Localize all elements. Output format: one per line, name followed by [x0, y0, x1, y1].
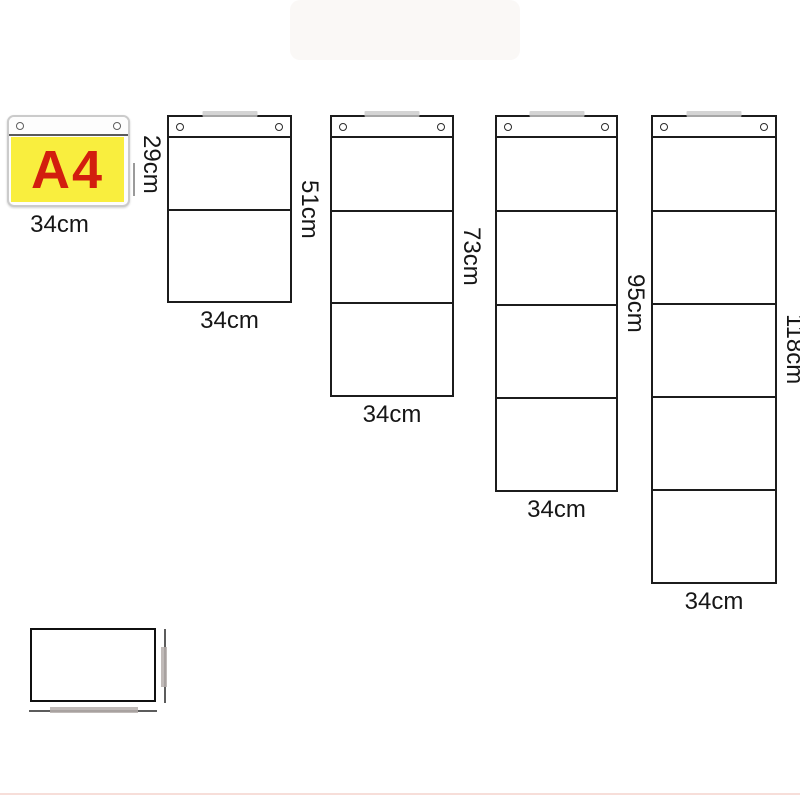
width-label: 34cm	[0, 212, 121, 238]
pocket	[169, 209, 290, 301]
width-label: 34cm	[167, 308, 292, 334]
eyelet-hole-right	[760, 123, 768, 131]
pocket	[497, 138, 616, 210]
pocket	[497, 304, 616, 397]
pocket-panel-2	[167, 115, 292, 303]
dimension-line-vertical-highlight	[161, 647, 167, 687]
pocket-panel-3	[330, 115, 454, 397]
pocket-panel-4	[495, 115, 618, 492]
pocket	[653, 303, 775, 396]
a4-display-panel: A4	[7, 115, 130, 207]
eyelet-hole-left	[339, 123, 347, 131]
bottom-accent-line	[0, 793, 800, 795]
pocket	[653, 210, 775, 303]
product-size-diagram: A434cm29cm34cm51cm34cm73cm34cm95cm34cm11…	[0, 0, 800, 800]
height-label: 118cm	[779, 115, 800, 584]
hanging-header	[332, 117, 452, 138]
flat-panel-outline	[30, 628, 156, 702]
pocket	[653, 489, 775, 582]
a4-size-label: A4	[31, 143, 104, 197]
pocket	[653, 138, 775, 210]
pocket-panel-5	[651, 115, 777, 584]
pocket	[332, 210, 452, 303]
hanging-header	[169, 117, 290, 138]
dimension-tick-29cm	[133, 163, 135, 196]
height-label: 73cm	[456, 115, 486, 397]
eyelet-hole-right	[601, 123, 609, 131]
hanging-header	[9, 117, 128, 136]
a4-insert-pocket: A4	[11, 137, 124, 202]
eyelet-hole-right	[275, 123, 283, 131]
watermark-smudge	[290, 0, 520, 60]
eyelet-hole-left	[660, 123, 668, 131]
pocket	[653, 396, 775, 489]
pocket	[332, 302, 452, 395]
height-label: 51cm	[294, 115, 324, 303]
eyelet-hole-left	[16, 122, 24, 130]
width-label: 34cm	[495, 497, 618, 523]
width-label: 34cm	[651, 589, 777, 615]
pocket	[497, 210, 616, 303]
hanging-header	[653, 117, 775, 138]
eyelet-hole-left	[504, 123, 512, 131]
hanging-header	[497, 117, 616, 138]
pocket	[332, 138, 452, 210]
height-label: 95cm	[620, 115, 650, 492]
eyelet-hole-right	[113, 122, 121, 130]
height-label: 29cm	[136, 134, 166, 194]
eyelet-hole-right	[437, 123, 445, 131]
width-label: 34cm	[330, 402, 454, 428]
pocket	[169, 138, 290, 209]
pocket	[497, 397, 616, 490]
dimension-line-horizontal-highlight	[50, 707, 138, 713]
eyelet-hole-left	[176, 123, 184, 131]
